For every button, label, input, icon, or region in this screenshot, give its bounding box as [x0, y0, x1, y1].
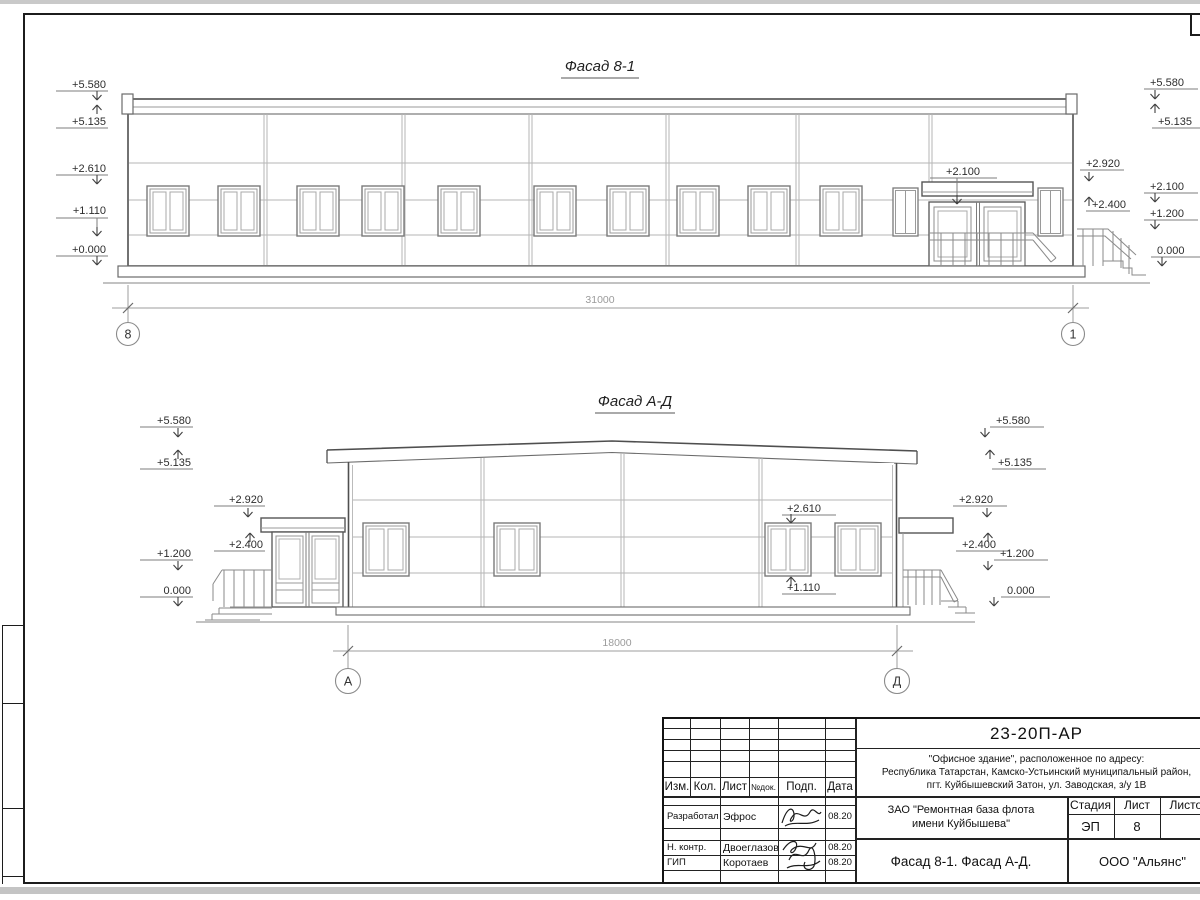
grid-line [664, 828, 855, 829]
col-header-list: Лист [720, 777, 749, 796]
facade-a-d-drawing: Фасад А-Д [140, 393, 1050, 694]
elevation-mark: +5.580 [157, 415, 191, 427]
page-edge-bottom [0, 887, 1200, 894]
window [607, 186, 649, 236]
window [820, 186, 862, 236]
elevation-marks-left: +5.580 +5.135 +2.610 +1.110 +0.000 [56, 79, 108, 265]
dimension-value: 18000 [602, 637, 631, 649]
grid-line [664, 739, 855, 740]
elevation-mark: +1.110 [787, 582, 820, 594]
side-canopy [899, 518, 953, 533]
elevation-mark: 0.000 [1157, 245, 1185, 257]
signature [779, 836, 824, 874]
address-line: пгт. Куйбышевский Затон, ул. Заводская, … [927, 779, 1147, 792]
doc-number: 23-20П-АР [855, 719, 1200, 748]
project-address: "Офисное здание", расположенное по адрес… [855, 748, 1200, 796]
margin-box-line [2, 876, 24, 877]
sheet-number: 8 [1114, 814, 1160, 838]
frame-left [23, 13, 25, 884]
plinth [118, 266, 1085, 277]
elevation-mark: +1.200 [1000, 548, 1034, 560]
porch-railing [205, 570, 272, 620]
window [438, 186, 480, 236]
side-stair [1077, 229, 1146, 275]
window [218, 186, 260, 236]
col-header-izm: Изм. [664, 777, 690, 796]
signature [779, 803, 824, 830]
side-structure [899, 518, 975, 613]
window [748, 186, 790, 236]
address-line: "Офисное здание", расположенное по адрес… [929, 753, 1145, 766]
staff-date: 08.20 [825, 805, 855, 828]
parapet-cap-left [122, 94, 133, 114]
col-header-podp: Подп. [778, 777, 825, 796]
sheets-label: Листов [1160, 796, 1200, 814]
elevation-mark: +2.400 [1092, 199, 1126, 211]
title-block: Изм. Кол. Лист №док. Подп. Дата Разработ… [662, 717, 1200, 884]
client-line: имени Куйбышева" [912, 817, 1010, 831]
elevation-mark: +5.580 [1150, 77, 1184, 89]
stage-value: ЭП [1067, 814, 1114, 838]
col-header-data: Дата [825, 777, 855, 796]
roof-line [327, 441, 917, 451]
window [677, 186, 719, 236]
window [893, 188, 918, 236]
facade-8-1-drawing: Фасад 8-1 [56, 58, 1200, 346]
elevation-marks-right: +5.580 +5.135 +2.920 +2.400 +1.200 0.000 [953, 415, 1050, 606]
side-railing [903, 570, 975, 613]
elevation-mark: +2.400 [229, 539, 263, 551]
col-header-ndok: №док. [749, 777, 778, 796]
vestibule-glazing [272, 532, 343, 607]
dimension-f1: 31000 8 1 [112, 285, 1089, 346]
elevation-mark: +5.580 [72, 79, 106, 91]
staff-name: Эфрос [720, 805, 778, 828]
margin-box-line [2, 703, 24, 704]
elevation-mark: +5.135 [1158, 116, 1192, 128]
staff-date: 08.20 [825, 840, 855, 855]
client-name: ЗАО "Ремонтная база флота имени Куйбышев… [855, 796, 1067, 838]
window [534, 186, 576, 236]
elevation-marks-right: +5.580 +5.135 +2.920 +2.400 +2.100 +1.20… [1080, 77, 1200, 266]
corner-box-line [1190, 34, 1200, 36]
address-line: Республика Татарстан, Камско-Устьинский … [882, 766, 1191, 779]
axis-label: 1 [1070, 328, 1077, 342]
elevation-mark: +2.920 [229, 494, 263, 506]
dimension-f2: 18000 А Д [333, 625, 913, 694]
elevation-mark: +1.110 [73, 205, 106, 217]
window [147, 186, 189, 236]
elevation-mark: +2.610 [787, 503, 821, 515]
stage-label: Стадия [1067, 796, 1114, 814]
window [297, 186, 339, 236]
axis-label: 8 [125, 328, 132, 342]
firm-name: ООО "Альянс" [1067, 840, 1200, 882]
vestibule-canopy [261, 518, 345, 532]
elevation-mark: +2.100 [946, 166, 980, 178]
window [362, 186, 404, 236]
drawing-sheet: Фасад 8-1 [0, 0, 1200, 900]
page-edge-top [0, 0, 1200, 4]
frame-top [23, 13, 1200, 15]
corner-box-line [1190, 13, 1192, 35]
elevation-mark: +1.200 [1150, 208, 1184, 220]
window [363, 523, 409, 576]
vestibule [205, 518, 345, 620]
elevation-mark: 0.000 [163, 585, 191, 597]
base-band [336, 607, 910, 615]
parapet-cap-right [1066, 94, 1077, 114]
elevation-mark: +2.400 [962, 539, 996, 551]
staff-role: Разработал [664, 805, 720, 828]
elevation-mark: +5.135 [998, 457, 1032, 469]
window [494, 523, 540, 576]
window [835, 523, 881, 576]
elevation-mark: +5.580 [996, 415, 1030, 427]
window [765, 523, 811, 576]
margin-box-line [2, 625, 24, 626]
elevation-mark: +2.100 [1150, 181, 1184, 193]
margin-box-line [2, 625, 3, 884]
elevation-mark: +1.200 [157, 548, 191, 560]
window [1038, 188, 1063, 236]
elevation-marks-left: +5.580 +5.135 +2.920 +2.400 +1.200 0.000 [140, 415, 265, 606]
elevation-mark: +2.920 [959, 494, 993, 506]
client-line: ЗАО "Ремонтная база флота [888, 803, 1035, 817]
entrance-canopy [922, 182, 1033, 196]
margin-box-line [2, 808, 24, 809]
grid-line [664, 761, 855, 762]
grid-line [664, 728, 855, 729]
staff-name: Коротаев [720, 855, 778, 870]
elevation-mark: +0.000 [72, 244, 106, 256]
elevation-mark: +2.920 [1086, 158, 1120, 170]
sheet-label: Лист [1114, 796, 1160, 814]
staff-name: Двоеглазов [720, 840, 778, 855]
dimension-value: 31000 [585, 294, 614, 306]
grid-line [664, 750, 855, 751]
elevation-mark: 0.000 [1007, 585, 1035, 597]
grid-line [664, 870, 855, 871]
facade1-title: Фасад 8-1 [565, 58, 635, 75]
staff-date: 08.20 [825, 855, 855, 870]
staff-role: Н. контр. [664, 840, 720, 855]
elevation-mark: +5.135 [72, 116, 106, 128]
axis-label: А [344, 675, 353, 689]
facade2-title: Фасад А-Д [598, 393, 673, 410]
col-header-kol: Кол. [690, 777, 720, 796]
elevation-mark: +2.610 [72, 163, 106, 175]
staff-role: ГИП [664, 855, 720, 870]
sheet-title: Фасад 8-1. Фасад А-Д. [855, 840, 1067, 882]
elevation-mark: +5.135 [157, 457, 191, 469]
axis-label: Д [893, 675, 902, 689]
